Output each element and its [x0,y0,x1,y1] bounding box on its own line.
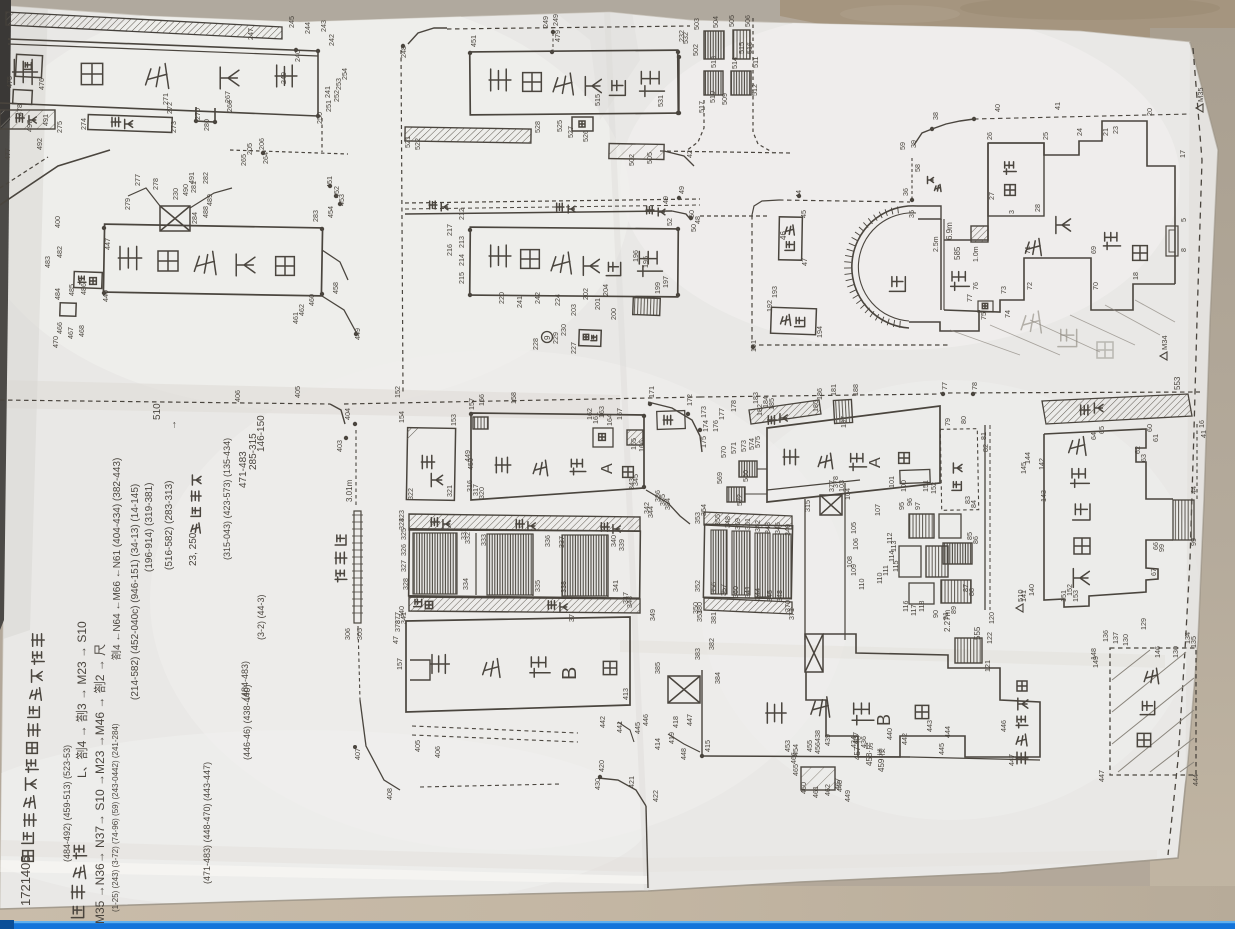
svg-text:214: 214 [457,254,466,266]
svg-text:248: 248 [399,46,408,58]
svg-text:420: 420 [597,760,606,772]
svg-text:446: 446 [999,720,1008,732]
svg-text:77: 77 [965,294,974,302]
svg-text:447: 447 [1097,770,1106,782]
svg-text:202: 202 [581,288,590,300]
svg-text:484: 484 [53,288,62,300]
svg-text:458·房: 458·房 [864,742,874,766]
svg-text:103: 103 [837,480,846,492]
svg-text:84: 84 [969,500,978,508]
svg-text:153: 153 [449,414,458,426]
svg-text:467: 467 [66,327,75,339]
svg-text:60: 60 [1145,424,1154,432]
svg-text:241: 241 [323,86,332,98]
svg-text:111: 111 [881,565,890,576]
svg-text:113: 113 [889,541,898,552]
svg-text:146-150: 146-150 [256,415,267,452]
svg-text:180: 180 [811,400,820,412]
svg-text:173: 173 [699,406,708,418]
svg-text:322: 322 [406,488,415,500]
svg-text:251: 251 [324,100,333,112]
svg-text:509: 509 [720,93,729,105]
svg-text:(484-492) (459-513) (523-53): (484-492) (459-513) (523-53) [62,745,72,862]
svg-text:460: 460 [307,294,316,306]
svg-text:422: 422 [651,790,660,802]
svg-text:41: 41 [1199,430,1208,438]
svg-text:449: 449 [843,790,852,802]
svg-text:17: 17 [1178,150,1187,158]
svg-text:B: B [559,667,581,680]
svg-text:421: 421 [627,776,636,788]
svg-text:M34: M34 [1160,335,1169,350]
svg-text:(446-46) (438-440): (446-46) (438-440) [242,684,252,760]
svg-text:343: 343 [763,522,772,534]
svg-text:273: 273 [169,121,178,133]
svg-text:491: 491 [187,172,196,184]
svg-text:62: 62 [1133,446,1142,454]
svg-text:485: 485 [67,284,76,296]
svg-text:23: 23 [1111,126,1120,134]
svg-text:47: 47 [391,636,400,644]
svg-text:250: 250 [315,112,324,124]
svg-text:270: 270 [193,108,202,120]
svg-text:327: 327 [399,560,408,572]
svg-text:468: 468 [77,325,86,337]
svg-text:477: 477 [3,148,12,160]
svg-text:465: 465 [791,764,800,776]
svg-text:130: 130 [1121,634,1130,646]
svg-text:490: 490 [181,184,190,196]
svg-text:354: 354 [699,504,708,516]
svg-text:52: 52 [665,218,674,226]
svg-text:348: 348 [625,596,634,608]
svg-text:105: 105 [849,522,858,534]
svg-text:177: 177 [717,408,726,420]
svg-text:106: 106 [851,538,860,550]
svg-text:448: 448 [679,748,688,760]
svg-text:M35 →N36→ N37→ S10 →M23 →M46 →: M35 →N36→ N37→ S10 →M23 →M46 → 劄2 → 尺 [92,644,107,924]
svg-text:400: 400 [53,216,62,228]
svg-text:443: 443 [925,720,934,732]
svg-text:58: 58 [913,164,922,172]
svg-text:514: 514 [730,57,739,69]
svg-text:560: 560 [741,470,750,482]
svg-text:444: 444 [943,726,952,738]
svg-text:39: 39 [909,140,918,148]
svg-text:76: 76 [971,282,980,290]
svg-text:278: 278 [151,178,160,190]
svg-text:1721405: 1721405 [18,855,33,906]
svg-text:406: 406 [233,390,242,402]
svg-text:97: 97 [913,502,922,510]
svg-text:135: 135 [1189,636,1198,648]
svg-text:157: 157 [467,398,476,410]
svg-text:356: 356 [709,582,718,594]
svg-text:324: 324 [397,518,406,530]
svg-text:120: 120 [987,612,996,624]
svg-text:3.01m: 3.01m [345,479,354,502]
svg-text:3: 3 [1007,210,1016,214]
svg-text:271: 271 [161,93,170,105]
svg-text:174: 174 [701,420,710,432]
svg-text:344: 344 [753,588,762,600]
svg-text:337: 337 [557,536,566,548]
svg-text:63: 63 [1139,454,1148,462]
svg-text:245: 245 [287,16,296,28]
svg-text:2.5m: 2.5m [933,236,940,252]
svg-text:338: 338 [559,581,568,593]
svg-text:230: 230 [171,188,180,200]
svg-text:188: 188 [851,384,860,396]
svg-text:78: 78 [970,382,979,390]
svg-text:186: 186 [815,388,824,400]
svg-text:385: 385 [653,662,662,674]
svg-text:122: 122 [985,632,994,644]
svg-text:249: 249 [279,72,288,84]
svg-text:28: 28 [1033,204,1042,212]
svg-text:461: 461 [291,312,300,324]
svg-text:121: 121 [983,660,992,672]
svg-text:274: 274 [79,118,88,130]
svg-text:381: 381 [709,612,718,624]
svg-text:81: 81 [979,432,988,440]
svg-text:2.27m: 2.27m [943,609,952,632]
svg-text:(516-582) (283-313): (516-582) (283-313) [164,481,175,571]
svg-text:451: 451 [469,35,478,47]
svg-text:575: 575 [753,436,762,448]
svg-text:152: 152 [929,482,938,494]
svg-text:306: 306 [343,628,352,640]
svg-text:531: 531 [656,95,665,107]
svg-text:166: 166 [637,440,646,452]
svg-text:357: 357 [719,584,728,596]
svg-text:215: 215 [457,272,466,284]
svg-text:340: 340 [783,524,792,536]
svg-text:143: 143 [1039,490,1048,502]
svg-text:232: 232 [677,30,686,42]
svg-text:382: 382 [707,638,716,650]
svg-text:345: 345 [765,590,774,602]
svg-text:45: 45 [799,210,808,218]
svg-text:158: 158 [509,392,518,404]
svg-text:419: 419 [667,732,676,744]
svg-text:344: 344 [646,506,655,518]
svg-text:355: 355 [713,514,722,526]
svg-text:528: 528 [533,121,542,133]
svg-text:162: 162 [585,408,594,420]
svg-text:176: 176 [711,420,720,432]
svg-text:446: 446 [641,714,650,726]
svg-text:570: 570 [719,446,728,458]
svg-text:439: 439 [823,734,832,746]
svg-text:(214-582) (452-040c) (946-151): (214-582) (452-040c) (946-151) (34-13) (… [130,484,141,700]
svg-text:527: 527 [566,126,575,138]
svg-text:408: 408 [385,788,394,800]
svg-text:280: 280 [202,119,211,131]
svg-text:35: 35 [907,210,916,218]
svg-text:341: 341 [743,586,752,598]
svg-text:249: 249 [551,14,560,26]
svg-text:46: 46 [779,231,788,240]
svg-text:442: 442 [900,733,909,745]
svg-text:486: 486 [79,283,88,295]
svg-text:447: 447 [103,238,112,250]
svg-text:383: 383 [693,648,702,660]
svg-text:220: 220 [497,292,506,304]
svg-text:510: 510 [152,403,163,420]
svg-text:152: 152 [393,386,402,398]
svg-text:341: 341 [611,580,620,592]
svg-text:99: 99 [1189,538,1198,546]
svg-text:劄4 ←N64 ←M66 ←N61 (404-434) (: 劄4 ←N64 ←M66 ←N61 (404-434) (382-443) [110,458,123,660]
svg-text:172: 172 [685,394,694,406]
svg-text:328: 328 [401,578,410,590]
svg-text:352: 352 [693,580,702,592]
svg-text:100: 100 [899,480,908,492]
svg-text:73: 73 [999,286,1008,294]
svg-text:445: 445 [937,743,946,755]
svg-text:384: 384 [713,672,722,684]
svg-text:(315-043) (423-573) (135-434): (315-043) (423-573) (135-434) [222,438,232,560]
svg-text:195: 195 [641,256,650,268]
svg-text:118: 118 [917,601,926,612]
svg-text:23, 250: 23, 250 [188,532,199,566]
svg-text:154: 154 [397,411,406,423]
svg-text:181: 181 [829,384,838,396]
svg-text:129: 129 [1139,618,1148,630]
svg-text:244: 244 [303,22,312,34]
svg-text:109: 109 [849,564,858,576]
svg-text:450: 450 [466,458,475,470]
svg-text:227: 227 [569,342,578,354]
svg-text:488: 488 [201,206,210,218]
svg-text:171: 171 [647,386,656,398]
svg-text:252: 252 [332,90,341,102]
svg-text:213: 213 [457,236,466,248]
svg-text:466: 466 [55,322,64,334]
svg-text:(471-483) (448-470) (443-447): (471-483) (448-470) (443-447) [202,762,212,884]
svg-text:476: 476 [37,78,46,90]
svg-text:192: 192 [765,300,774,312]
svg-text:27: 27 [987,192,996,200]
svg-text:553: 553 [1173,376,1182,390]
svg-text:(196-914) (319-381): (196-914) (319-381) [144,483,155,573]
svg-text:88: 88 [967,588,976,596]
svg-text:342: 342 [753,520,762,532]
svg-text:149: 149 [1091,656,1100,668]
svg-text:334: 334 [461,578,470,590]
svg-text:359: 359 [733,518,742,530]
svg-text:228: 228 [531,338,540,350]
svg-text:482: 482 [55,246,64,258]
svg-text:144: 144 [1023,452,1032,464]
svg-text:513: 513 [709,56,718,68]
svg-text:36: 36 [901,188,910,196]
svg-text:526: 526 [581,130,590,142]
svg-text:284: 284 [190,212,199,224]
svg-text:489: 489 [205,194,214,206]
svg-text:503: 503 [692,18,701,30]
svg-text:47: 47 [800,258,809,266]
svg-text:114: 114 [887,551,896,562]
svg-text:305: 305 [355,628,364,640]
svg-text:384: 384 [663,498,672,510]
svg-text:266: 266 [225,100,234,112]
svg-text:351: 351 [695,610,704,622]
svg-text:511: 511 [751,57,760,68]
svg-text:24: 24 [1075,128,1084,136]
svg-text:140: 140 [1027,584,1036,596]
svg-text:224: 224 [553,294,562,306]
svg-text:572: 572 [735,494,744,506]
svg-text:414: 414 [653,738,662,750]
svg-text:447: 447 [685,714,694,726]
svg-text:59: 59 [898,142,907,150]
svg-text:242: 242 [327,34,336,46]
svg-text:253: 253 [334,78,343,90]
svg-text:B: B [874,714,894,726]
svg-text:497: 497 [25,120,34,132]
svg-text:442: 442 [598,716,607,728]
svg-text:99: 99 [1157,544,1166,552]
svg-text:413: 413 [621,688,630,700]
svg-text:(3-2) (44-3): (3-2) (44-3) [256,594,266,640]
svg-text:405: 405 [413,740,422,752]
svg-text:585: 585 [953,246,962,260]
svg-text:201: 201 [593,298,602,310]
svg-text:175: 175 [699,436,708,448]
svg-text:418: 418 [671,716,680,728]
svg-text:A: A [867,457,884,468]
svg-text:72: 72 [1025,282,1034,290]
svg-text:512: 512 [750,84,759,96]
svg-text:525: 525 [555,120,564,132]
svg-text:571: 571 [729,442,738,454]
svg-text:167: 167 [615,408,624,420]
svg-text:70: 70 [1091,282,1100,290]
svg-text:406: 406 [433,746,442,758]
svg-text:461: 461 [811,786,820,798]
svg-text:478: 478 [15,104,24,116]
svg-text:279: 279 [123,198,132,210]
svg-text:458: 458 [331,282,340,294]
svg-text:360: 360 [731,586,740,598]
svg-text:229: 229 [551,332,560,344]
svg-text:502: 502 [691,44,700,56]
svg-text:206: 206 [257,138,266,150]
svg-text:86: 86 [971,536,980,544]
svg-text:249: 249 [541,16,550,28]
svg-text:434: 434 [849,736,858,748]
svg-text:1.0m: 1.0m [973,246,980,262]
svg-text:18: 18 [1131,272,1140,280]
svg-text:505: 505 [645,152,654,164]
svg-text:371: 371 [787,608,796,620]
svg-text:178: 178 [729,400,738,412]
svg-text:37: 37 [567,614,576,622]
svg-text:491: 491 [41,114,50,126]
svg-text:555: 555 [973,626,982,640]
svg-text:241: 241 [515,296,524,308]
svg-text:230: 230 [559,324,568,336]
svg-text:522: 522 [413,138,422,150]
svg-text:L、劄4 → 劄3 → M23 → S10: L、劄4 → 劄3 → M23 → S10 [74,621,89,778]
svg-text:349: 349 [648,609,657,621]
svg-text:521: 521 [403,136,412,148]
svg-text:242: 242 [533,292,542,304]
svg-text:A: A [599,463,616,474]
svg-text:517: 517 [697,101,706,113]
svg-text:504: 504 [711,16,720,28]
svg-text:315: 315 [803,500,812,512]
svg-text:61: 61 [1151,434,1160,442]
svg-text:80: 80 [959,416,968,424]
svg-text:142: 142 [1037,458,1046,470]
svg-text:407: 407 [353,748,362,760]
svg-text:475: 475 [5,76,14,88]
svg-text:265: 265 [239,154,248,166]
svg-text:335: 335 [533,580,542,592]
svg-text:217: 217 [445,224,454,236]
svg-text:243: 243 [319,20,328,32]
svg-text:90: 90 [931,610,940,618]
svg-text:454: 454 [326,206,335,218]
svg-text:438: 438 [813,730,822,742]
svg-text:444: 444 [1191,774,1200,786]
svg-text:38: 38 [931,112,940,120]
svg-text:415: 415 [703,740,712,752]
svg-text:445: 445 [633,722,642,734]
svg-text:41: 41 [1053,102,1062,110]
svg-text:345: 345 [631,474,640,486]
svg-text:332: 332 [463,532,472,544]
svg-text:193: 193 [770,286,779,298]
svg-text:183: 183 [751,392,760,404]
svg-text:77: 77 [940,382,949,390]
svg-text:65: 65 [1097,426,1106,434]
svg-text:320: 320 [477,487,486,499]
svg-text:5: 5 [1179,218,1188,222]
svg-text:6.9m: 6.9m [945,222,954,240]
svg-text:440: 440 [101,290,110,302]
svg-text:483: 483 [43,256,52,268]
svg-text:M35: M35 [1196,87,1205,102]
svg-text:137: 137 [1111,632,1120,644]
svg-text:456: 456 [813,742,822,754]
svg-text:339: 339 [617,539,626,551]
svg-text:505: 505 [727,15,736,27]
svg-text:216: 216 [445,244,454,256]
svg-text:336: 336 [543,535,552,547]
svg-text:75: 75 [979,312,988,320]
svg-text:240: 240 [293,50,302,62]
svg-text:506: 506 [743,15,752,27]
svg-text:194: 194 [815,326,824,338]
svg-text:264: 264 [261,152,270,164]
svg-text:378: 378 [393,620,402,632]
svg-text:157: 157 [395,658,404,670]
svg-text:321: 321 [445,485,454,497]
svg-text:205: 205 [245,143,254,155]
svg-text:26: 26 [985,132,994,140]
svg-text:569: 569 [715,472,724,484]
svg-text:462: 462 [823,784,832,796]
svg-text:459·楼: 459·楼 [876,748,886,772]
svg-text:107: 107 [873,504,882,516]
svg-text:492: 492 [35,138,44,150]
svg-text:203: 203 [569,304,578,316]
svg-text:196: 196 [631,250,640,262]
